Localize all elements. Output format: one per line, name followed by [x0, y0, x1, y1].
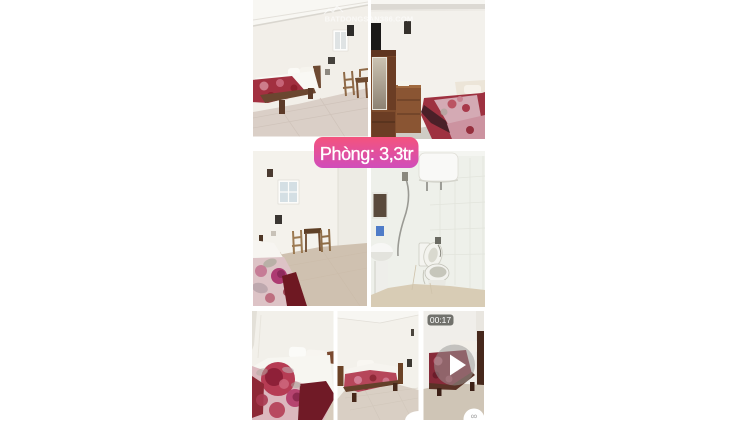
- svg-text:00:17: 00:17: [430, 315, 452, 325]
- svg-text:Phòng: 3,3tr: Phòng: 3,3tr: [320, 144, 414, 164]
- svg-text:∞: ∞: [471, 411, 477, 420]
- svg-text:BATDONGSAN386.COM: BATDONGSAN386.COM: [325, 15, 414, 24]
